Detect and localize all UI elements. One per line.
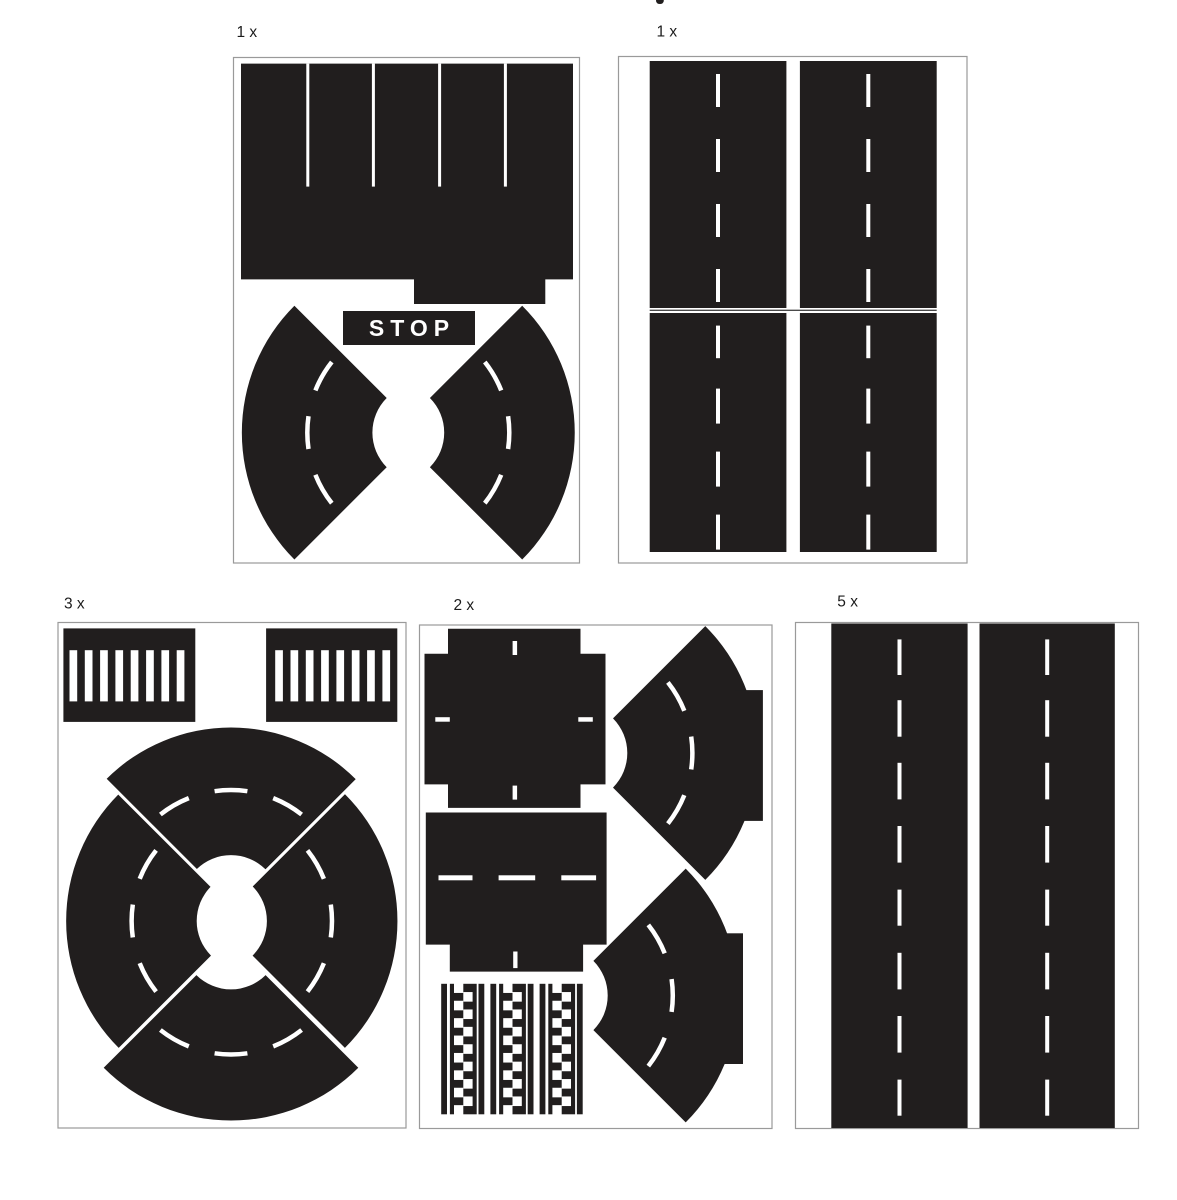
svg-text:STOP: STOP — [369, 315, 455, 341]
svg-text:1 x: 1 x — [237, 24, 258, 41]
svg-text:5 x: 5 x — [837, 593, 858, 610]
svg-text:1 x: 1 x — [657, 23, 678, 40]
svg-text:2 x: 2 x — [454, 597, 475, 614]
svg-text:3 x: 3 x — [64, 596, 85, 613]
